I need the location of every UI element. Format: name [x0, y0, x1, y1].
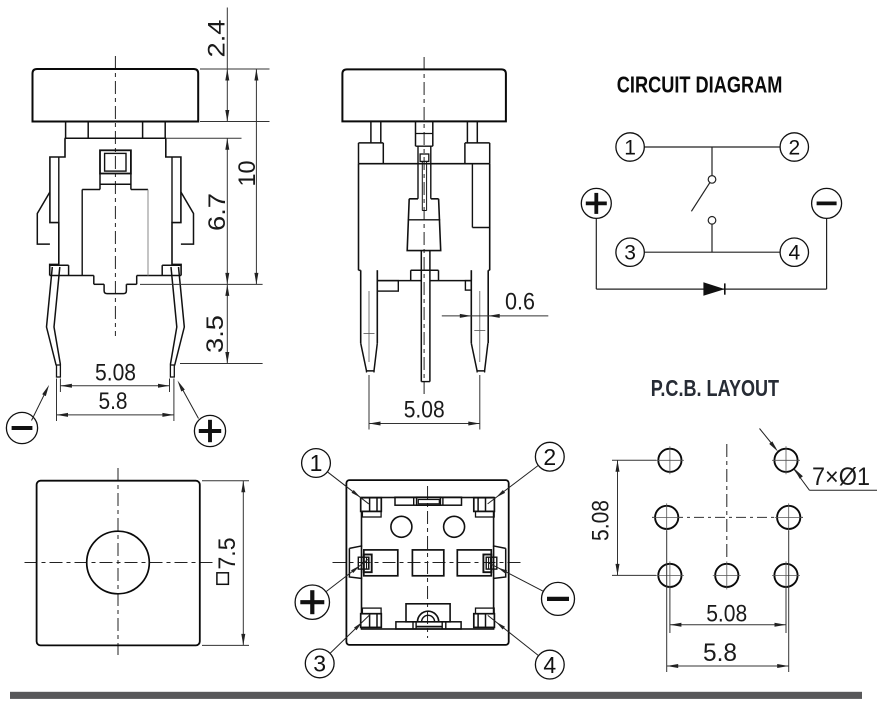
svg-text:1: 1 [624, 136, 636, 159]
svg-text:5.08: 5.08 [95, 360, 136, 387]
svg-text:5.8: 5.8 [703, 639, 737, 667]
svg-text:1: 1 [310, 450, 323, 476]
svg-text:3: 3 [624, 242, 636, 265]
svg-text:3.5: 3.5 [202, 315, 229, 353]
svg-text:5.08: 5.08 [588, 500, 615, 541]
svg-text:0.6: 0.6 [505, 289, 535, 316]
svg-text:P.C.B. LAYOUT: P.C.B. LAYOUT [651, 375, 780, 401]
svg-text:7×Ø1: 7×Ø1 [812, 463, 870, 491]
svg-text:10: 10 [234, 161, 261, 187]
svg-text:5.08: 5.08 [404, 397, 445, 424]
svg-text:2: 2 [543, 444, 556, 470]
svg-text:4: 4 [543, 652, 556, 678]
svg-text:7.5: 7.5 [214, 538, 241, 570]
svg-text:CIRCUIT DIAGRAM: CIRCUIT DIAGRAM [617, 72, 783, 98]
svg-text:2: 2 [788, 136, 800, 159]
svg-text:4: 4 [788, 242, 800, 265]
svg-text:5.8: 5.8 [99, 388, 128, 415]
svg-text:6.7: 6.7 [204, 193, 231, 231]
svg-text:2.4: 2.4 [204, 20, 231, 58]
svg-text:5.08: 5.08 [706, 600, 747, 627]
svg-text:3: 3 [313, 651, 326, 677]
